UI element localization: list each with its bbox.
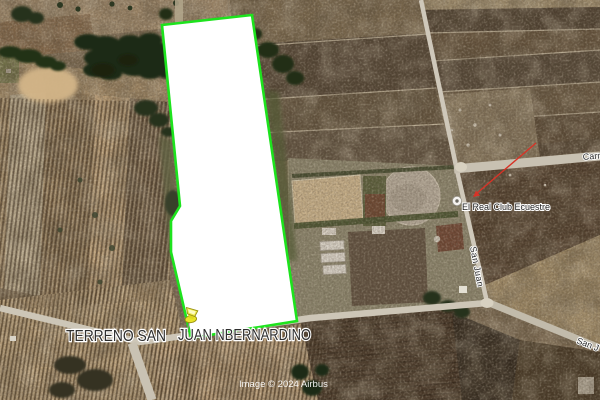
svg-text:El Real Club Ecuestre: El Real Club Ecuestre — [462, 202, 550, 213]
svg-text:Carre: Carre — [582, 150, 600, 162]
svg-text:Image © 2024 Airbus: Image © 2024 Airbus — [239, 379, 328, 390]
svg-text:TERRENO SAN: TERRENO SAN — [66, 328, 166, 345]
svg-text:JUAN NBERNARDINO: JUAN NBERNARDINO — [178, 327, 311, 344]
